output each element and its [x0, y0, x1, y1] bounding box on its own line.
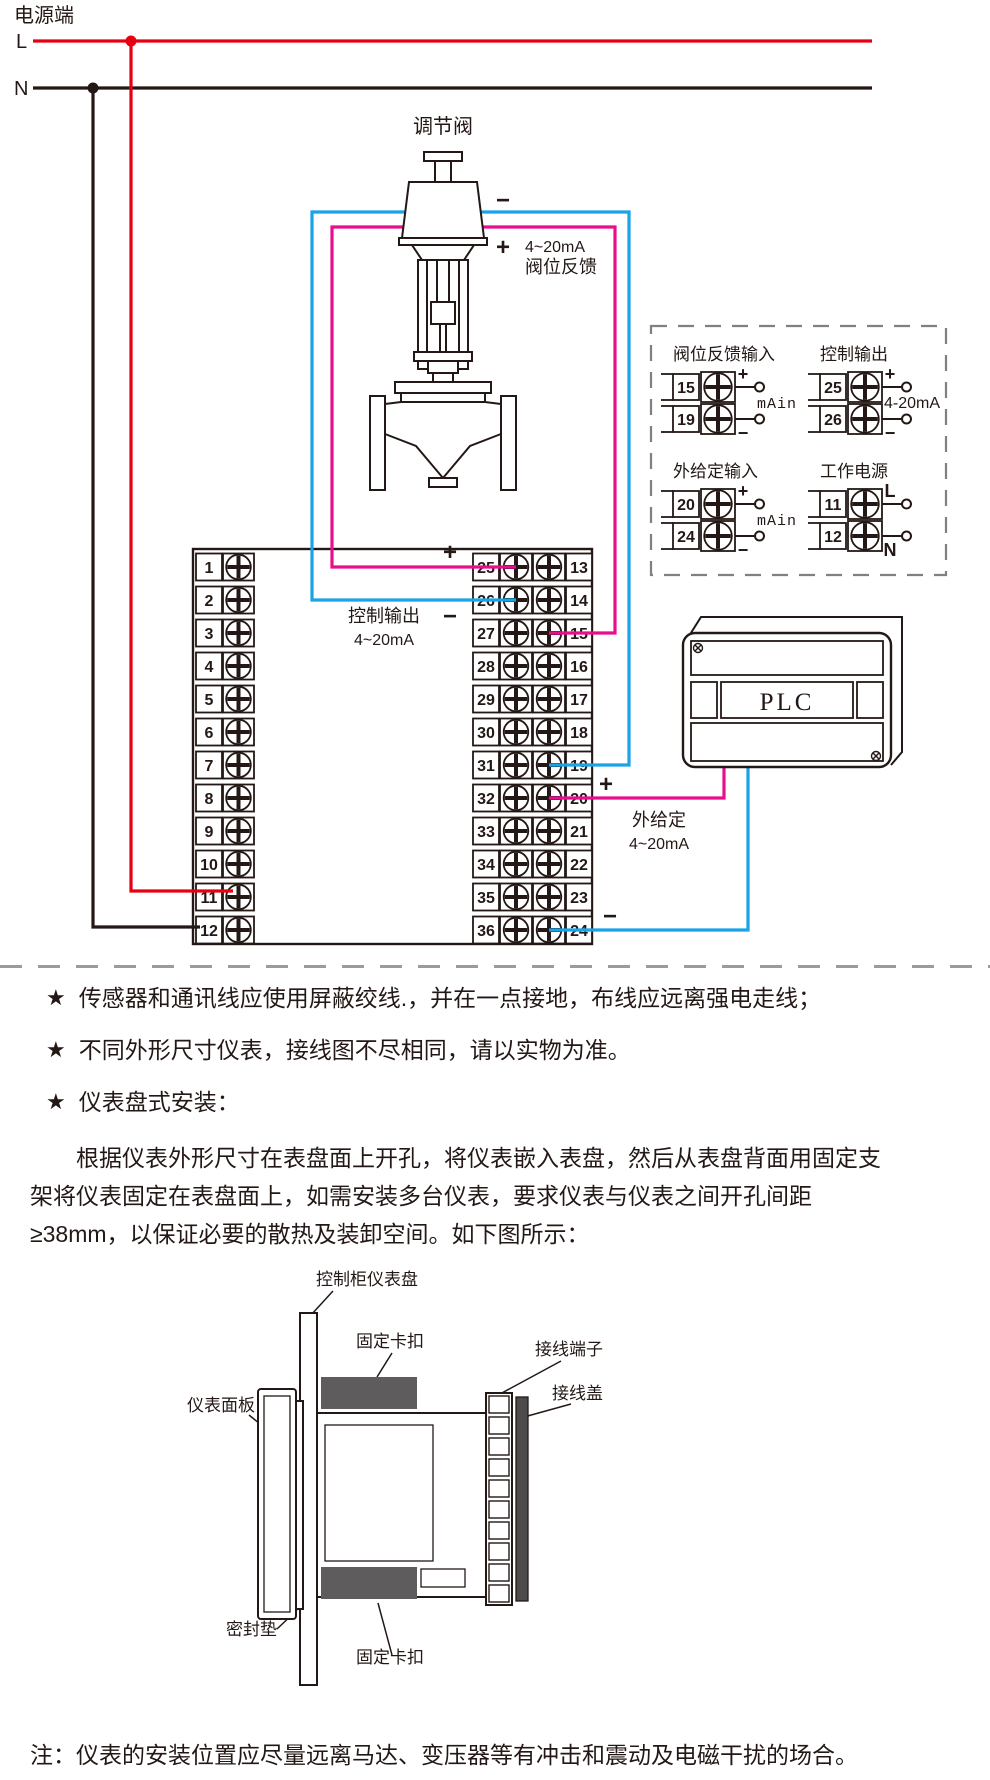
installation-paragraph: 根据仪表外形尺寸在表盘面上开孔，将仪表嵌入表盘，然后从表盘背面用固定支架将仪表固…: [30, 1139, 902, 1253]
legend-group: 阀位反馈输入15+19−mAin: [661, 345, 797, 443]
valve-actuator-base: [399, 238, 487, 245]
page: { "palette": { "red": "#e60012", "magent…: [0, 0, 990, 1780]
valve-yoke-left: [418, 260, 427, 352]
valve-label: 调节阀: [413, 115, 473, 138]
terminal-number: 28: [477, 659, 495, 676]
valve-pipe-flange-left: [370, 396, 385, 490]
mount-clip-top: [321, 1377, 417, 1409]
terminal-number: 2: [205, 593, 214, 610]
terminal-strip-cell: [489, 1585, 509, 1602]
valve-pipe-flange-right: [501, 396, 516, 490]
legend-group: 工作电源11L12N: [808, 462, 911, 560]
terminal-number: 12: [824, 529, 842, 546]
gasket-label: 密封垫: [226, 1620, 277, 1639]
legend-signal-note: mAin: [757, 513, 797, 530]
terminal-screw-icon: [500, 620, 532, 647]
terminal-number: 21: [570, 824, 588, 841]
control-output-label: 控制输出: [348, 606, 420, 626]
note-bullet: ★ 仪表盘式安装：: [46, 1088, 962, 1117]
terminal-number: 4: [205, 659, 214, 676]
star-icon: ★: [46, 1088, 66, 1116]
note-text: 仪表盘式安装：: [79, 1088, 240, 1117]
legend-polarity-tag: L: [885, 481, 896, 501]
terminal-strip-cell: [489, 1522, 509, 1539]
terminal-screw-icon: [223, 785, 254, 812]
terminal-number: 1: [205, 560, 214, 577]
valve-plus-sign: +: [496, 234, 510, 261]
valve-bolt-left: [418, 361, 428, 369]
legend-signal-note: mAin: [757, 396, 797, 413]
note-bullet: ★ 不同外形尺寸仪表，接线图不尽相同，请以实物为准。: [46, 1036, 962, 1065]
terminal-screw-icon: [500, 851, 532, 878]
plc-box: PLC: [683, 617, 902, 767]
terminal-screw-icon: [533, 818, 565, 845]
note-bullet: ★ 传感器和通讯线应使用屏蔽绞线.，并在一点接地，布线应远离强电走线；: [46, 984, 962, 1013]
feedback-name-label: 阀位反馈: [525, 257, 597, 277]
legend-wire-end: [902, 383, 911, 392]
valve-bonnet-lower: [433, 373, 453, 382]
wiring-diagram: 电源端 L N 123456789101112 2513261427152816…: [0, 0, 990, 950]
terminal-number: 35: [477, 890, 495, 907]
terminal-screw-icon: [848, 372, 882, 402]
terminal-screw-icon: [223, 653, 254, 680]
terminal-strip-cell: [489, 1564, 509, 1581]
terminal-screw-icon: [500, 818, 532, 845]
valve-body: [385, 402, 501, 478]
control-output-range: 4~20mA: [354, 632, 414, 649]
legend-group-title: 外给定输入: [673, 462, 758, 481]
terminal-number: 5: [205, 692, 214, 709]
legend-wire-end: [755, 500, 764, 509]
legend-wire-end: [902, 415, 911, 424]
valve-graphic: [370, 152, 516, 490]
terminal-screw-icon: [500, 686, 532, 713]
legend-groups: 阀位反馈输入15+19−mAin控制输出25+26−4-20mA外给定输入20+…: [661, 345, 940, 560]
terminal-screw-icon: [500, 785, 532, 812]
terminal-screw-icon: [533, 851, 565, 878]
terminal-screw-icon: [533, 587, 565, 614]
terminal-screw-icon: [533, 884, 565, 911]
legend-wire-end: [755, 415, 764, 424]
valve-stem-thin: [440, 324, 446, 354]
legend-group: 外给定输入20+24−mAin: [661, 462, 797, 560]
terminal-number: 12: [200, 923, 218, 940]
terminal-number: 8: [205, 791, 214, 808]
setpoint-label: 外给定: [632, 810, 686, 830]
terminal-screw-icon: [701, 489, 735, 519]
valve-yoke-right: [459, 260, 468, 352]
setpoint-plus-sign: +: [599, 771, 613, 798]
setpoint-range: 4~20mA: [629, 836, 689, 853]
power-rails: 电源端 L N: [14, 4, 872, 100]
terminal-screw-icon: [848, 521, 882, 551]
terminal-screw-icon: [848, 404, 882, 434]
terminal-number: 30: [477, 725, 495, 742]
valve-handle-stem: [435, 161, 451, 182]
terminal-screw-icon: [701, 521, 735, 551]
terminal-screw-icon: [223, 818, 254, 845]
clip-top-label: 固定卡扣: [356, 1332, 424, 1351]
terminal-screw-icon: [500, 719, 532, 746]
plc-label: PLC: [760, 689, 815, 716]
terminal-number: 17: [570, 692, 588, 709]
valve-neck: [412, 245, 474, 260]
note-text: 不同外形尺寸仪表，接线图不尽相同，请以实物为准。: [79, 1036, 631, 1065]
terminal-screw-icon: [500, 653, 532, 680]
terminal-strip-cell: [489, 1396, 509, 1413]
plc-right-slot: [857, 682, 883, 718]
terminal-cover: [516, 1397, 528, 1601]
valve-bonnet: [428, 361, 458, 373]
terminal-number: 32: [477, 791, 495, 808]
terminal-strip-cell: [489, 1459, 509, 1476]
terminal-screw-icon: [223, 719, 254, 746]
terminal-screw-icon: [223, 884, 254, 911]
legend-polarity-tag: N: [884, 540, 897, 560]
terminal-number: 36: [477, 923, 495, 940]
terminal-number: 14: [570, 593, 588, 610]
legend-polarity-tag: +: [885, 364, 896, 384]
legend-group-title: 阀位反馈输入: [673, 345, 775, 364]
terminal-number: 27: [477, 626, 495, 643]
plc-bottom-slot: [691, 723, 883, 761]
terminal-number: 22: [570, 857, 588, 874]
terminal-number: 15: [677, 380, 695, 397]
terminal-screw-icon: [848, 489, 882, 519]
terminal-screw-icon: [223, 917, 254, 944]
terminal-number: 19: [677, 412, 695, 429]
valve-minus-sign: −: [496, 187, 510, 214]
legend-group: 控制输出25+26−4-20mA: [808, 345, 940, 443]
terminal-screw-icon: [223, 587, 254, 614]
terminal-number: 16: [570, 659, 588, 676]
valve-stem-upper: [437, 260, 449, 302]
terminal-number: 31: [477, 758, 495, 775]
terminal-screw-icon: [500, 917, 532, 944]
instrument-side-inner: [325, 1425, 433, 1561]
valve-bolt-right: [458, 361, 468, 369]
terminal-number: 10: [200, 857, 218, 874]
terminal-screw-icon: [500, 884, 532, 911]
terminal-number: 25: [824, 380, 842, 397]
terminal-strip-cell: [489, 1501, 509, 1518]
front-bezel-label: 仪表面板: [187, 1396, 255, 1415]
terminal-screw-icon: [500, 752, 532, 779]
valve-actuator: [402, 182, 484, 238]
terminal-screw-icon: [223, 686, 254, 713]
power-terminal-label: 电源端: [14, 4, 74, 27]
terminal-number: 3: [205, 626, 214, 643]
terminal-screw-icon: [533, 686, 565, 713]
plc-left-slot: [691, 682, 717, 718]
terminal-screw-icon: [223, 851, 254, 878]
terminal-number: 18: [570, 725, 588, 742]
terminal-screw-icon: [533, 653, 565, 680]
line-l-label: L: [16, 31, 27, 53]
valve-body-foot: [429, 478, 457, 487]
mount-clip-bottom: [321, 1567, 417, 1599]
terminal-number: 20: [677, 497, 695, 514]
legend-polarity-tag: −: [885, 423, 896, 443]
star-icon: ★: [46, 984, 66, 1012]
feedback-range-label: 4~20mA: [525, 239, 585, 256]
terminal-strip-cell: [489, 1543, 509, 1560]
valve-yoke-base: [414, 352, 472, 361]
terminal-strip: [486, 1393, 512, 1605]
legend-wire-end: [755, 383, 764, 392]
terminal-screw-icon: [701, 404, 735, 434]
terminal-number: 29: [477, 692, 495, 709]
valve-handle-bar: [424, 152, 462, 161]
terminal-strip-cell: [489, 1417, 509, 1434]
terminal-screw-icon: [533, 554, 565, 581]
legend-polarity-tag: +: [738, 481, 749, 501]
legend-polarity-tag: +: [738, 364, 749, 384]
panel-label: 控制柜仪表盘: [316, 1270, 418, 1289]
legend-wire-end: [902, 532, 911, 541]
valve-top-flange-lower: [401, 393, 485, 402]
terminal-screw-icon: [533, 719, 565, 746]
terminal-number: 9: [205, 824, 214, 841]
legend-wire-end: [902, 500, 911, 509]
legend-group-title: 工作电源: [820, 462, 888, 481]
legend-wire-end: [755, 532, 764, 541]
legend-group-title: 控制输出: [820, 345, 888, 364]
terminal-number: 11: [825, 497, 842, 514]
terminal-number: 6: [205, 725, 214, 742]
terminal-number: 7: [205, 758, 214, 775]
terminal-number: 34: [477, 857, 495, 874]
terminal-strip-cell: [489, 1438, 509, 1455]
terminal-screw-icon: [223, 752, 254, 779]
terminal-strip-label: 接线端子: [535, 1340, 603, 1359]
installation-diagram: 控制柜仪表盘 固定卡扣 接线端子 接线盖 仪表面板 密封垫 固定卡扣: [0, 1265, 990, 1705]
valve-stem-block: [431, 302, 455, 324]
front-bezel-inner: [264, 1396, 290, 1612]
note-text: 传感器和通讯线应使用屏蔽绞线.，并在一点接地，布线应远离强电走线；: [79, 984, 821, 1013]
line-n-label: N: [14, 78, 28, 100]
terminal-screw-icon: [223, 554, 254, 581]
terminal-number: 33: [477, 824, 495, 841]
terminal-number: 26: [824, 412, 842, 429]
terminal-cover-label: 接线盖: [552, 1384, 603, 1403]
instrument-side-detail: [421, 1569, 465, 1587]
notes-section: ★ 传感器和通讯线应使用屏蔽绞线.，并在一点接地，布线应远离强电走线； ★ 不同…: [0, 968, 990, 1253]
legend-polarity-tag: −: [738, 540, 749, 560]
terminal-number: 24: [677, 529, 695, 546]
terminal-strip-cell: [489, 1480, 509, 1497]
clip-bottom-label: 固定卡扣: [356, 1648, 424, 1667]
bottom-note: 注：仪表的安装位置应尽量远离马达、变压器等有冲击和震动及电磁干扰的场合。: [30, 1736, 990, 1770]
terminal-number: 23: [570, 890, 588, 907]
control-output-plus-sign: +: [443, 539, 457, 566]
valve-top-flange: [395, 382, 491, 393]
setpoint-minus-sign: −: [603, 903, 617, 930]
terminal-screw-icon: [223, 620, 254, 647]
control-output-minus-sign: −: [443, 603, 457, 630]
plc-top-slot: [691, 641, 883, 675]
star-icon: ★: [46, 1036, 66, 1064]
n-wire-to-terminal-12: [93, 88, 200, 927]
terminal-number: 13: [570, 560, 588, 577]
legend-polarity-tag: −: [738, 423, 749, 443]
terminal-screw-icon: [701, 372, 735, 402]
legend-signal-note: 4-20mA: [884, 395, 940, 412]
